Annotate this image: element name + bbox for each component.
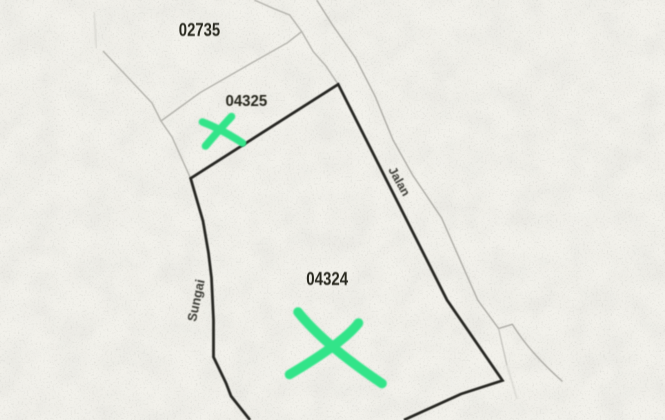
- svg-text:04324: 04324: [306, 269, 348, 290]
- svg-text:04325: 04325: [226, 93, 268, 110]
- svg-text:02735: 02735: [179, 20, 220, 41]
